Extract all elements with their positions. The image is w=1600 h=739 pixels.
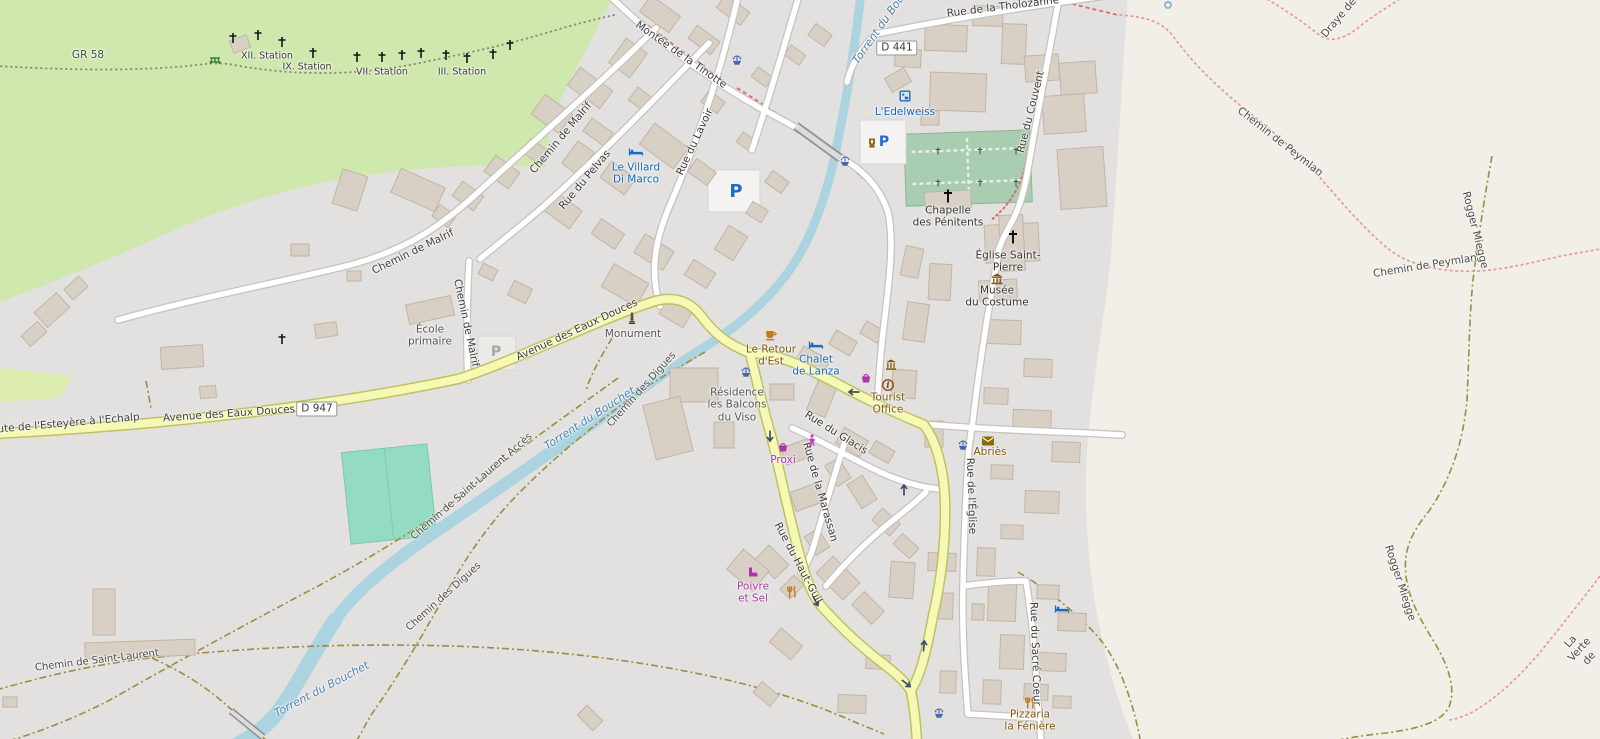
map-label: Chemin des Digues [404,560,484,634]
map-label: Chemin de Peymlan [1372,252,1478,281]
map-label: Tourist Office [871,392,906,417]
oneway-arrow-icon [846,388,861,397]
blue-ring-icon [1164,1,1173,10]
parking-icon: P [879,135,889,149]
map-label: La Verte de [1557,627,1600,672]
map-label: Église Saint- Pierre [976,250,1041,275]
station-cross-icon [398,50,407,61]
station-cross-icon [254,30,263,41]
map-label: GR 58 [72,49,104,61]
map-label: Draye de [1319,0,1359,40]
station-cross-icon [353,52,362,63]
map-label: Chemin de Saint-Laurent Accès [409,431,535,543]
map-label: Torrent du Bouchet [542,385,638,453]
map-label: Rue de la Marassan [800,441,840,543]
map-label: Rue du Lavoir [674,107,716,178]
parking-icon-large: P [729,183,742,201]
grave-cross-icon [1013,179,1020,187]
oneway-arrow-icon [766,430,775,445]
map-label: Proxi [770,454,795,466]
road-shield: D 947 [296,402,337,417]
oneway-arrow-icon [898,676,915,692]
shoe-icon [746,567,758,578]
station-cross-icon [489,49,498,60]
church-cross-icon [943,189,954,203]
envelope-icon [982,436,995,446]
map-label: Rue du Couvent [1015,70,1047,154]
map-label: III. Station [438,66,486,77]
map-label: XII. Station [241,50,293,61]
map-label: Rue de la Tholozanne [946,0,1060,20]
fountain-icon [957,439,969,451]
map-label: Le Villard Di Marco [612,162,660,187]
map-label: Chalet de Lanza [792,354,839,379]
station-cross-icon [442,50,451,61]
map-label: Poivre et Sel [737,581,769,606]
map-label: Rue de l'Église [963,458,978,535]
map-canvas[interactable]: GR 58XII. StationIX. StationVII. Station… [0,0,1600,739]
svg-text:i: i [886,381,890,391]
bed-icon [629,147,644,158]
map-label: Chemin de Saint-Laurent [34,648,159,675]
station-cross-icon [278,37,287,48]
map-label: École primaire [408,324,452,349]
map-label: Musée du Costume [965,285,1028,310]
map-label: Monument [605,328,661,340]
map-label: Torrent du Bouchet [272,660,371,721]
oneway-arrow-icon [809,593,824,610]
map-label: IX. Station [282,61,331,72]
lamp-icon [867,138,877,149]
map-label: Rue du Haut-Guil [771,520,824,605]
person-icon [807,434,818,446]
map-label: Route de l'Esteyère à l'Echalp [0,411,140,437]
map-label: Chemin de Malrif [528,100,595,176]
grave-cross-icon [1013,147,1020,155]
map-label: Chemin de Peymlan [1235,105,1325,179]
church-cross-icon [1008,230,1019,244]
road-shield: D 441 [876,41,917,56]
map-label: Chemin de Malrif [370,227,456,277]
map-label-overlay: GR 58XII. StationIX. StationVII. Station… [0,0,1600,739]
picnic-icon [209,55,222,66]
map-label: VII. Station [356,66,408,77]
map-label: Avenue des Eaux Douces [514,296,639,363]
townhall-icon [885,360,897,371]
fountain-icon [933,707,945,719]
fountain-icon [740,366,752,378]
map-label: Rue du Glacis [802,409,869,457]
station-cross-icon [417,48,426,59]
map-label: Chemin des Digues [605,350,679,430]
basket-icon [860,373,872,384]
basket-icon [777,442,789,453]
map-label: Rue du Sacré Coeur [1027,602,1043,706]
oneway-arrow-icon [919,637,929,653]
map-label: Torrent du Bouchet [850,0,921,67]
monument-icon [628,312,636,325]
grave-cross-icon [935,147,942,155]
info-icon: i [882,379,895,392]
fountain-icon [731,54,743,66]
map-label: L'Edelweiss [875,106,935,118]
fountain-icon [839,155,851,167]
oneway-arrow-icon [900,482,909,497]
station-cross-icon [506,40,515,51]
cafe-icon [765,329,778,341]
map-label: Le Retour d'Est [746,344,796,369]
station-cross-icon [278,334,287,345]
station-cross-icon [309,48,318,59]
grave-cross-icon [935,179,942,187]
station-cross-icon [463,53,472,64]
map-label: Avenue des Eaux Douces [163,403,296,425]
hostel-icon [899,90,911,102]
map-label: Chemin de Malrif [451,278,482,368]
map-label: Rue du Pelvas [557,148,614,212]
map-label: Rogger Miegge [1382,544,1418,623]
map-label: Chapelle des Pénitents [913,205,984,230]
grave-cross-icon [977,147,984,155]
map-label: Résidence les Balcons du Viso [707,386,766,423]
restaurant-icon [1025,697,1036,710]
parking-icon-grey: P [491,345,501,359]
bed-icon [1055,604,1070,615]
grave-cross-icon [977,179,984,187]
map-label: Pizzaria la Fénière [1004,709,1055,734]
station-cross-icon [229,33,238,44]
station-cross-icon [378,52,387,63]
bed-icon [809,340,824,351]
map-label: Rogger Miegge [1459,190,1490,270]
restaurant-icon [787,586,798,599]
museum-icon [991,274,1004,285]
map-label: Montée de la Tinotte [633,19,729,91]
map-label: Abriès [973,446,1006,458]
